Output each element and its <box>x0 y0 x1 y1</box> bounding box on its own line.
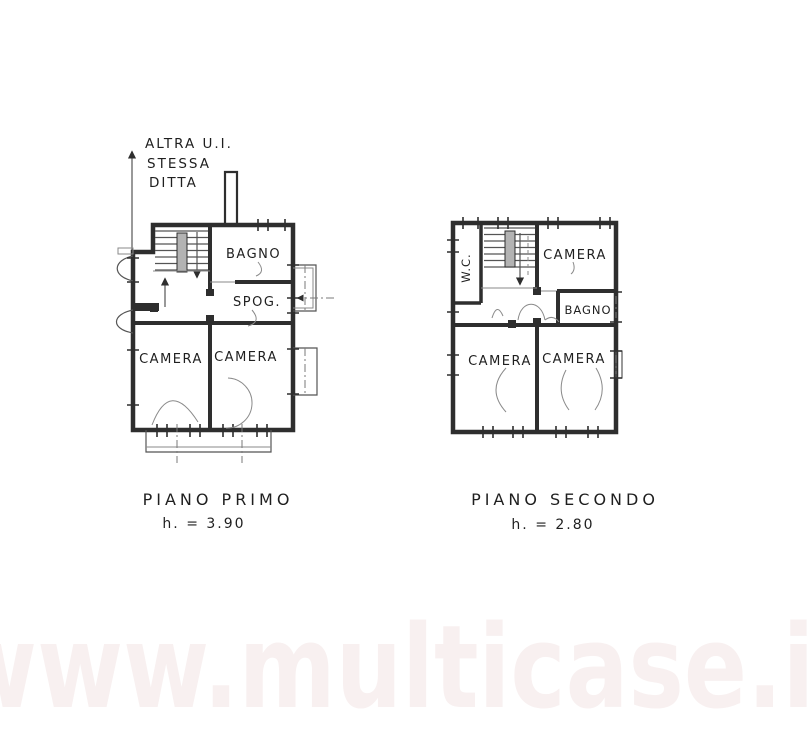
stair-stringer <box>505 231 515 267</box>
door-arc-entrance <box>117 256 133 281</box>
chimney <box>225 172 237 225</box>
caption-first-floor: PIANO PRIMO <box>143 490 294 509</box>
door-arc-camera-right-second <box>595 368 602 410</box>
staircase-second <box>481 228 537 288</box>
balcony-right-lower <box>293 348 317 395</box>
annotation-line-2: STESSA <box>147 156 211 172</box>
room-label-camera-right-second: CAMERA <box>542 352 606 367</box>
room-label-camera-left-first: CAMERA <box>139 352 203 367</box>
hand-squiggle <box>571 262 574 274</box>
room-label-bagno-second: BAGNO <box>564 303 611 317</box>
annotation-line-1: ALTRA U.I. <box>145 136 233 152</box>
door-post <box>206 315 214 322</box>
height-label-first-floor: h. = 3.90 <box>162 516 245 532</box>
door-arc-camera-left <box>152 401 198 425</box>
staircase-first <box>153 231 210 307</box>
floor-plan-drawing: ALTRA U.I. STESSA DITTA <box>0 0 810 735</box>
floor-plan-page: www.multicase.it ALTRA U.I. STESSA DITTA <box>0 0 810 735</box>
balcony-right-upper <box>293 265 316 311</box>
door-arc-camera-right-second <box>561 370 569 410</box>
room-label-camera-right-first: CAMERA <box>214 350 278 365</box>
room-label-wc: W.C. <box>459 253 473 282</box>
second-floor-plan: W.C. CAMERA BAGNO CAMERA CAMERA PIANO SE… <box>447 217 659 533</box>
room-label-camera-top: CAMERA <box>543 248 607 263</box>
door-arc-camera-left-second <box>496 368 506 412</box>
hand-squiggle <box>256 262 262 276</box>
stair-stringer <box>177 233 187 272</box>
door-arc-hall <box>518 304 545 320</box>
annotation-line-3: DITTA <box>149 175 198 191</box>
door-post <box>533 318 541 325</box>
door-arc-entrance <box>116 310 133 333</box>
door-arc-camera-right <box>226 378 252 428</box>
room-label-bagno-first: BAGNO <box>226 247 281 262</box>
door-post <box>508 320 516 328</box>
room-label-camera-left-second: CAMERA <box>468 354 532 369</box>
room-label-spog: SPOG. <box>233 295 281 310</box>
door-post <box>206 289 214 296</box>
caption-second-floor: PIANO SECONDO <box>471 490 659 509</box>
first-floor-plan: ALTRA U.I. STESSA DITTA <box>116 136 334 532</box>
height-label-second-floor: h. = 2.80 <box>511 517 594 533</box>
hand-squiggle <box>492 309 503 318</box>
door-post <box>150 303 158 312</box>
